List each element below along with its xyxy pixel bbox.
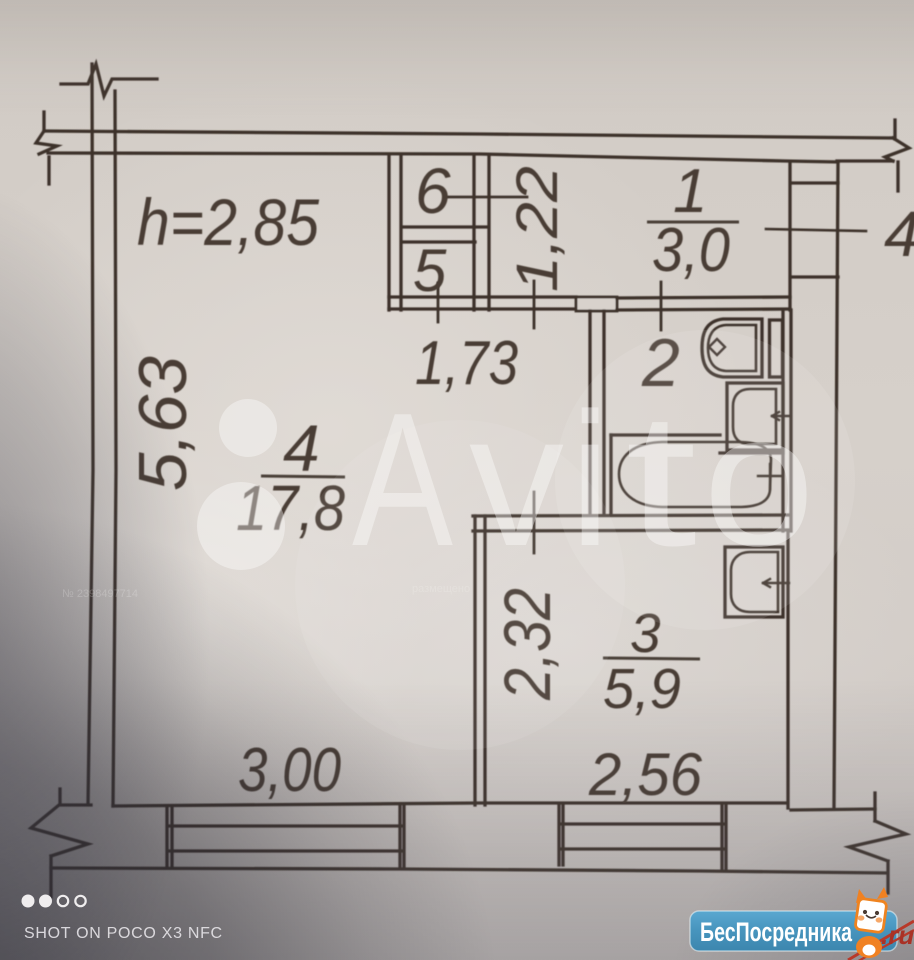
- svg-text:БесПосредника: БесПосредника: [700, 917, 853, 947]
- svg-text:A: A: [352, 374, 453, 586]
- svg-text:размещено: размещено: [412, 583, 470, 595]
- svg-text:№ 2398497714: № 2398497714: [62, 588, 138, 600]
- svg-text:SHOT ON POCO X3 NFC: SHOT ON POCO X3 NFC: [24, 925, 223, 942]
- svg-text:v: v: [469, 374, 564, 586]
- svg-text:i: i: [569, 374, 611, 586]
- svg-text:o: o: [703, 374, 815, 586]
- svg-text:.ru: .ru: [881, 920, 914, 950]
- svg-text:t: t: [625, 374, 697, 586]
